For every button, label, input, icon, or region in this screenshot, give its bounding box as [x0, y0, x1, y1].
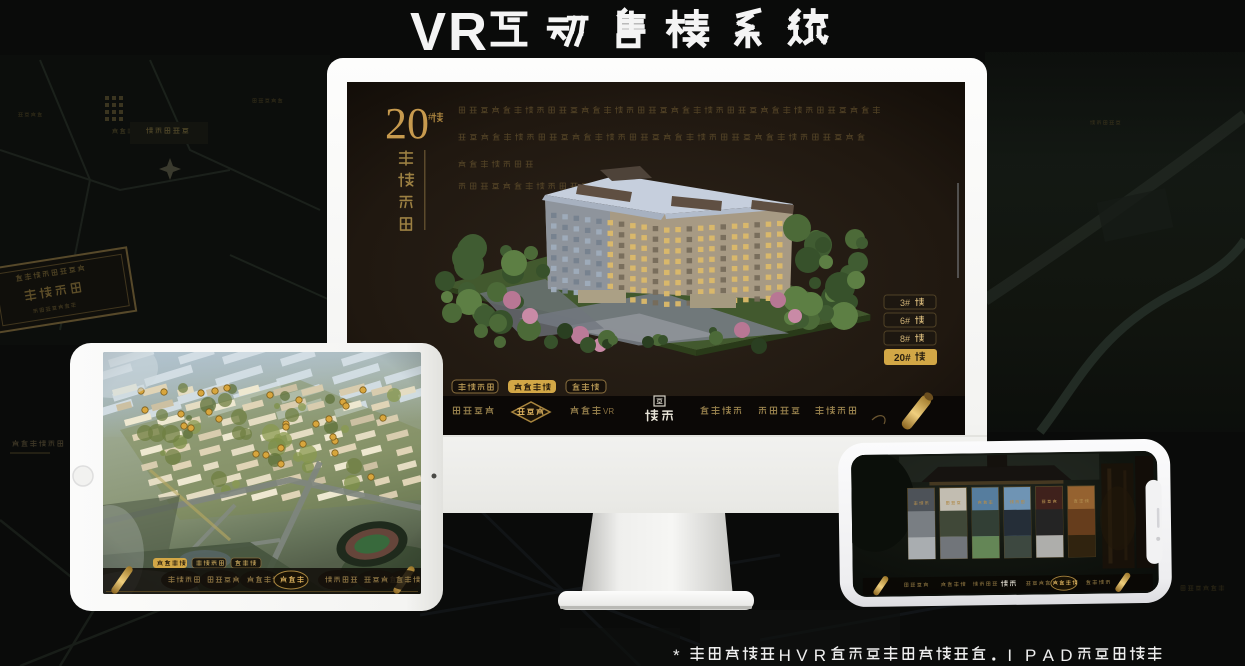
svg-text:D: D	[1060, 646, 1072, 665]
svg-text:*: *	[673, 646, 680, 665]
svg-text:R: R	[814, 646, 826, 665]
svg-text:A: A	[1043, 646, 1055, 665]
svg-text:V: V	[796, 646, 808, 665]
svg-text:I: I	[1007, 646, 1012, 665]
svg-text:8#: 8#	[900, 334, 910, 344]
svg-text:VR: VR	[603, 407, 614, 416]
svg-text:VR: VR	[410, 2, 489, 62]
svg-text:P: P	[1025, 646, 1036, 665]
svg-text:20: 20	[385, 99, 429, 148]
svg-text:#: #	[428, 112, 434, 123]
svg-text:20#: 20#	[894, 353, 911, 364]
svg-text:3#: 3#	[900, 298, 910, 308]
svg-text:6#: 6#	[900, 316, 910, 326]
svg-text:H: H	[779, 646, 791, 665]
